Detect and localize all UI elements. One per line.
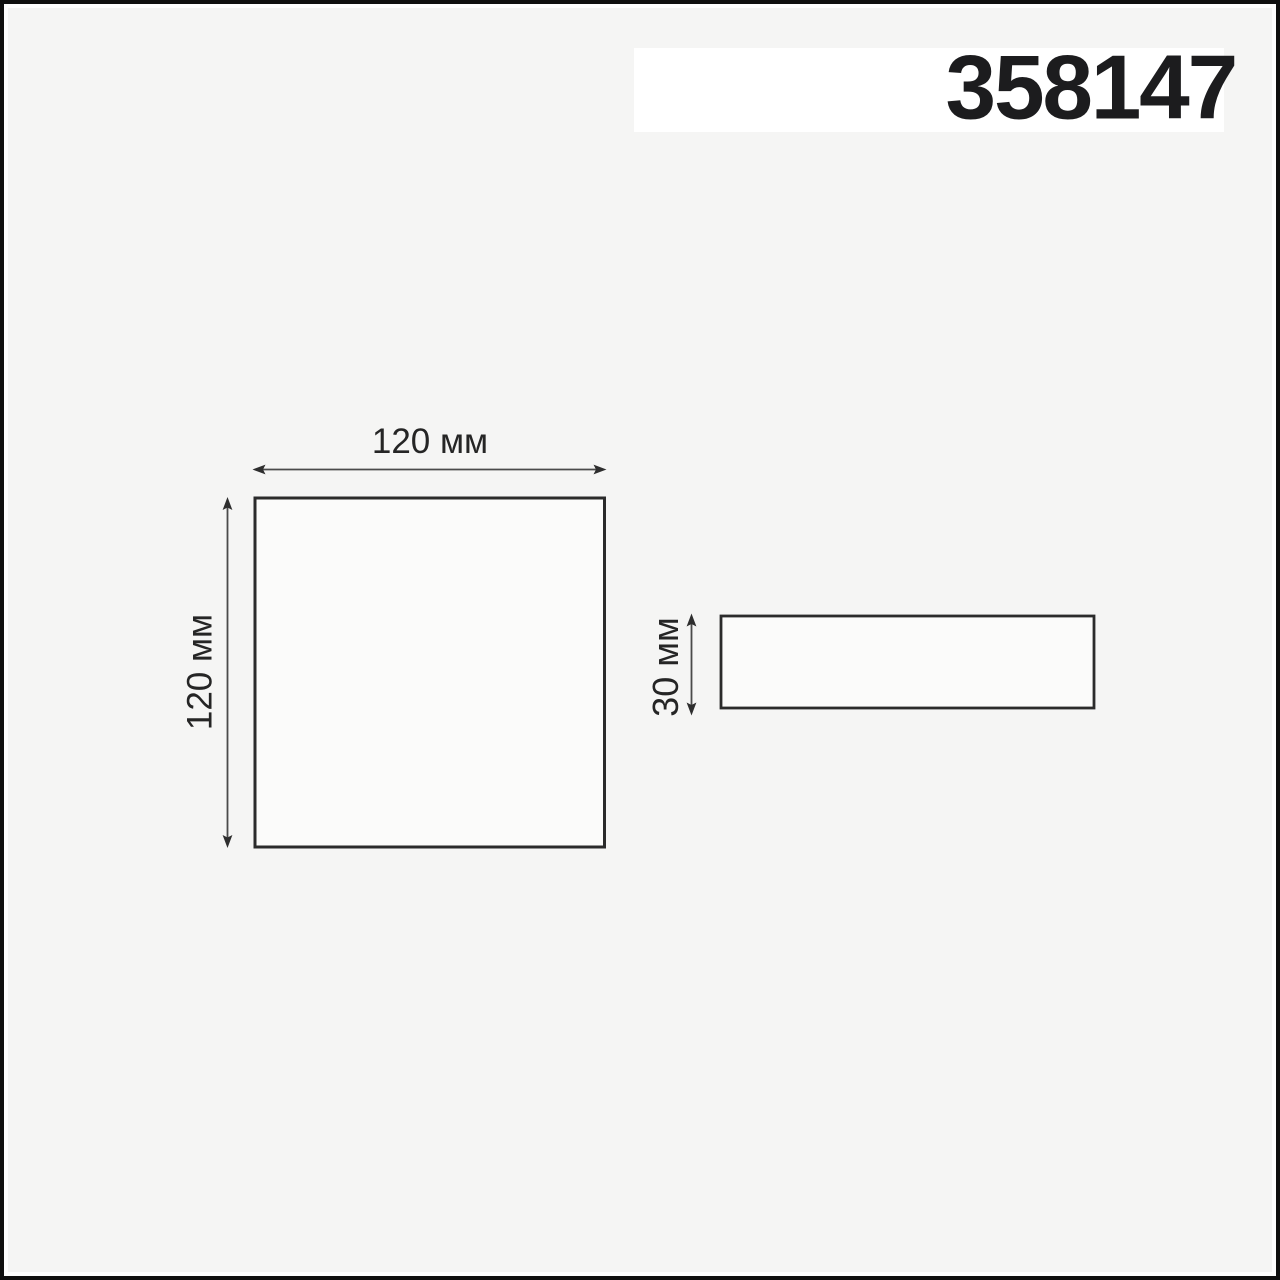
svg-text:120 мм: 120 мм — [181, 614, 220, 730]
svg-text:120 мм: 120 мм — [372, 422, 488, 461]
svg-text:30 мм: 30 мм — [645, 617, 686, 717]
svg-text:358147: 358147 — [946, 38, 1236, 139]
